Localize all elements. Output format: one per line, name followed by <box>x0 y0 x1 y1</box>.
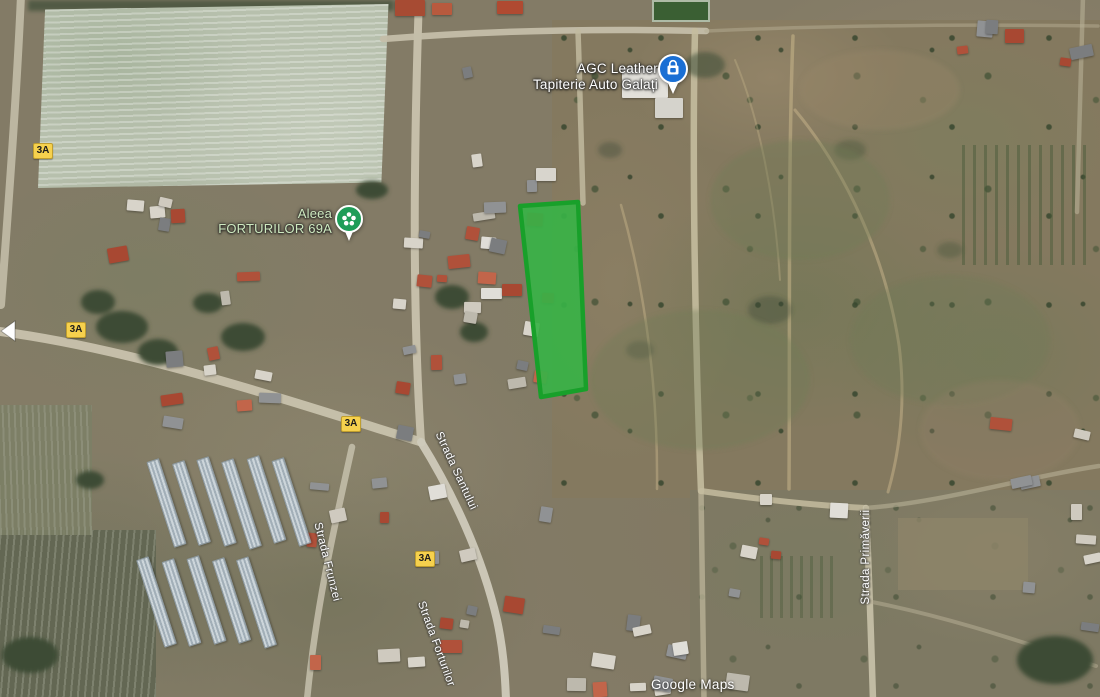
poi-aleea-line1: Aleea <box>196 206 332 221</box>
building <box>395 0 425 16</box>
building <box>207 346 220 361</box>
building <box>591 652 616 669</box>
poi-label-agc-leather[interactable]: AGC Leather Tapiterie Auto Galați <box>500 61 658 93</box>
building <box>310 655 321 670</box>
small-field <box>0 405 92 535</box>
orchard-rows <box>962 145 1090 265</box>
building <box>372 477 388 489</box>
building <box>489 237 508 254</box>
building <box>165 350 183 367</box>
route-badge-3a: 3A <box>415 551 435 567</box>
building <box>220 290 231 305</box>
building <box>830 503 849 519</box>
building <box>567 678 586 691</box>
orchard-rows <box>760 556 834 618</box>
building <box>502 284 522 296</box>
building <box>539 506 553 523</box>
building <box>408 656 426 667</box>
building <box>481 288 502 299</box>
building <box>380 512 389 523</box>
building <box>760 494 772 505</box>
building <box>497 1 523 14</box>
building <box>986 20 999 35</box>
building <box>471 153 483 167</box>
building <box>466 605 478 616</box>
building <box>416 274 432 288</box>
building <box>171 209 186 224</box>
building <box>484 202 506 214</box>
building <box>1023 581 1036 593</box>
building <box>431 355 442 370</box>
building <box>465 226 480 241</box>
building <box>989 417 1012 431</box>
building <box>404 238 423 249</box>
building <box>463 311 478 324</box>
building <box>259 393 281 404</box>
building <box>453 373 466 385</box>
building <box>432 3 452 15</box>
building <box>1005 29 1024 43</box>
building <box>439 617 453 630</box>
route-badge-3a: 3A <box>33 143 53 159</box>
building <box>759 537 770 545</box>
route-badge-3a: 3A <box>341 416 361 432</box>
building <box>630 683 646 692</box>
sports-court <box>652 0 710 22</box>
building <box>592 682 607 697</box>
building <box>957 45 969 54</box>
building <box>771 551 782 560</box>
map-canvas[interactable]: AGC Leather Tapiterie Auto Galați Aleea … <box>0 0 1100 697</box>
building <box>395 381 411 395</box>
building <box>1076 534 1097 544</box>
building <box>378 648 401 662</box>
farm-field <box>38 4 392 188</box>
building <box>478 271 497 284</box>
building <box>127 199 145 211</box>
building <box>237 272 260 282</box>
google-maps-watermark: Google Maps <box>651 677 735 692</box>
poi-agc-line1: AGC Leather <box>500 61 658 77</box>
street-label-primaverii: Strada Primăverii <box>860 510 872 605</box>
park-flower-pin-icon[interactable] <box>334 205 364 243</box>
route-badge-3a: 3A <box>66 322 86 338</box>
shopping-bag-pin-icon[interactable] <box>657 54 689 96</box>
building <box>536 168 556 181</box>
building <box>396 425 414 442</box>
building <box>527 180 537 192</box>
dark-field <box>0 530 156 697</box>
building <box>203 364 216 375</box>
building <box>462 66 473 79</box>
small-field <box>898 518 1028 590</box>
building <box>503 596 525 615</box>
poi-agc-line2: Tapiterie Auto Galați <box>500 77 658 93</box>
building <box>447 254 470 269</box>
building <box>237 399 253 411</box>
building <box>728 588 740 598</box>
building <box>1071 504 1082 520</box>
building <box>655 98 683 118</box>
poi-aleea-line2: FORTURILOR 69A <box>196 221 332 236</box>
building <box>150 205 166 218</box>
building <box>1059 57 1071 66</box>
building <box>437 275 447 283</box>
bush-speckles-south <box>690 490 1100 697</box>
building <box>158 217 171 232</box>
building <box>393 298 407 309</box>
poi-label-aleea-forturilor[interactable]: Aleea FORTURILOR 69A <box>196 206 332 236</box>
building <box>672 641 689 656</box>
building <box>459 619 469 628</box>
